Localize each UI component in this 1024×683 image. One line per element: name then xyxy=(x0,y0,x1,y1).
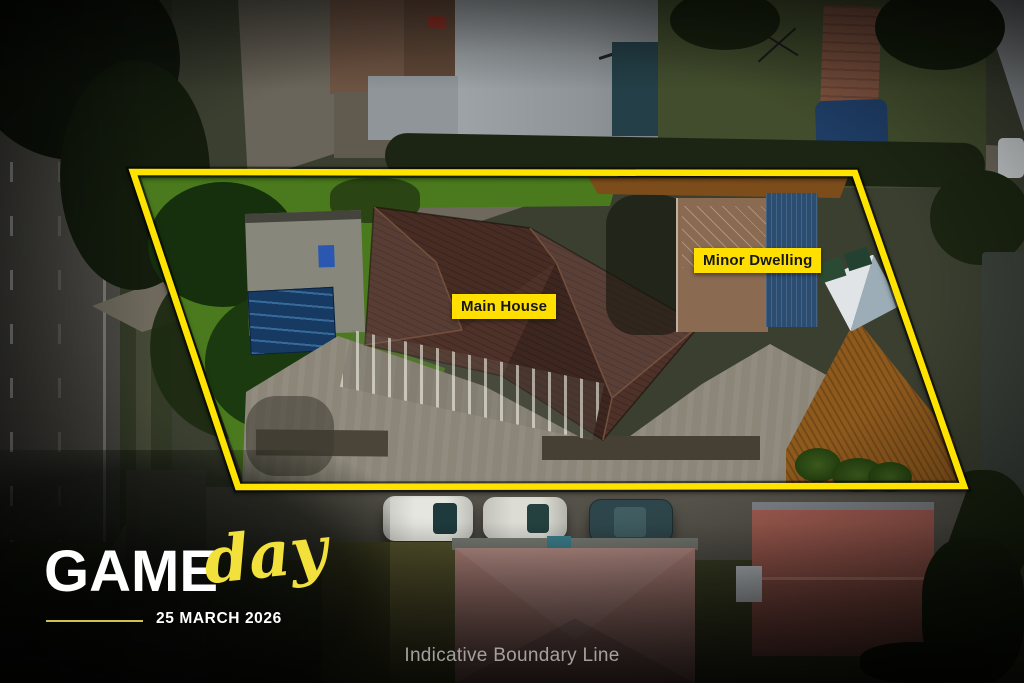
logo-day-script: day xyxy=(201,518,330,595)
minor-dwelling-label: Minor Dwelling xyxy=(694,248,821,273)
main-house-label: Main House xyxy=(452,294,556,319)
logo-game-text: GAME xyxy=(44,543,218,601)
aerial-property-photo: Main House Minor Dwelling GAME day 25 MA… xyxy=(0,0,1024,683)
indicative-boundary-note: Indicative Boundary Line xyxy=(0,645,1024,667)
logo-divider-line xyxy=(46,620,143,622)
logo-event-date: 25 MARCH 2026 xyxy=(156,610,282,628)
